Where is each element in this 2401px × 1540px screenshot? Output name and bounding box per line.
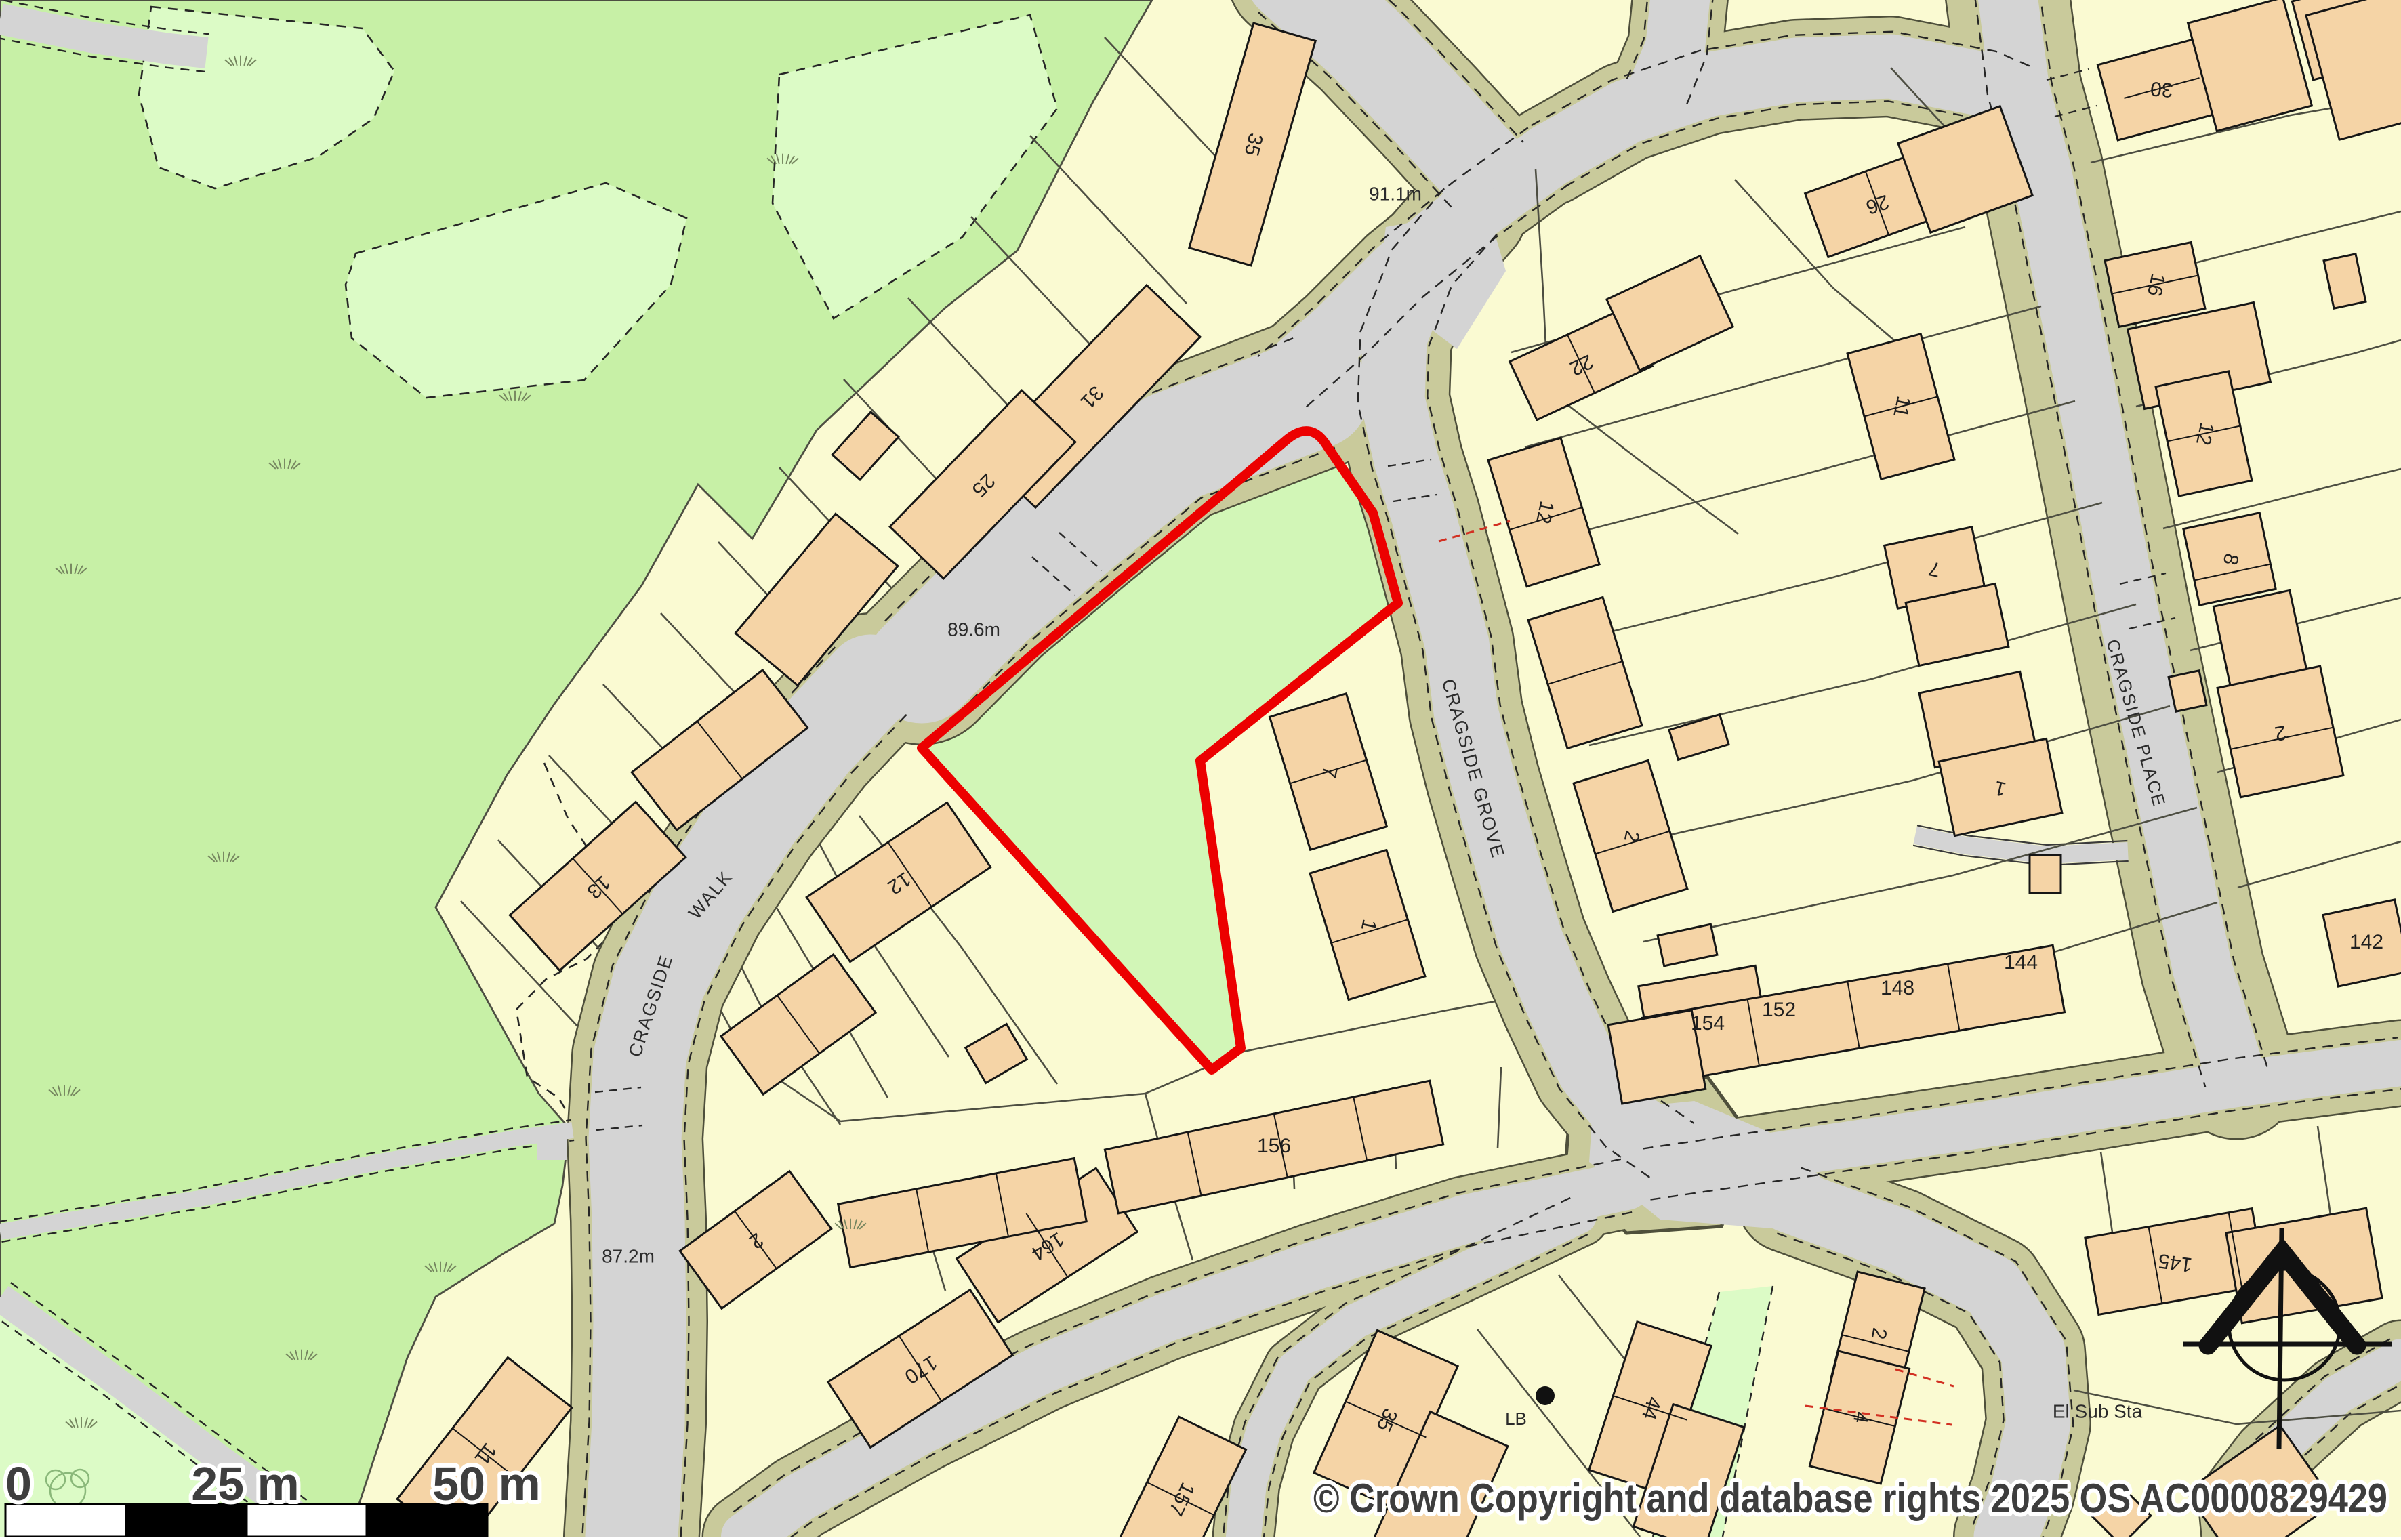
svg-text:156: 156 (1257, 1135, 1291, 1157)
svg-text:50 m: 50 m (432, 1457, 541, 1510)
svg-text:142: 142 (2349, 931, 2383, 953)
svg-text:91.1m: 91.1m (1369, 183, 1422, 204)
svg-text:148: 148 (1881, 977, 1914, 999)
svg-text:144: 144 (2004, 951, 2038, 974)
svg-text:12: 12 (1532, 499, 1558, 526)
svg-text:El Sub Sta: El Sub Sta (2053, 1400, 2143, 1421)
svg-text:© Crown Copyright and database: © Crown Copyright and database rights 20… (1313, 1476, 2387, 1521)
svg-text:87.2m: 87.2m (602, 1245, 655, 1266)
svg-text:152: 152 (1762, 999, 1796, 1021)
svg-text:89.6m: 89.6m (947, 619, 1000, 640)
svg-text:30: 30 (2150, 77, 2174, 102)
svg-text:145: 145 (2157, 1249, 2194, 1276)
svg-text:154: 154 (1691, 1012, 1725, 1035)
svg-text:0: 0 (5, 1457, 32, 1510)
svg-text:12: 12 (2192, 421, 2218, 448)
svg-text:16: 16 (2143, 272, 2169, 299)
svg-text:LB: LB (1505, 1409, 1527, 1429)
svg-text:25 m: 25 m (191, 1457, 300, 1510)
